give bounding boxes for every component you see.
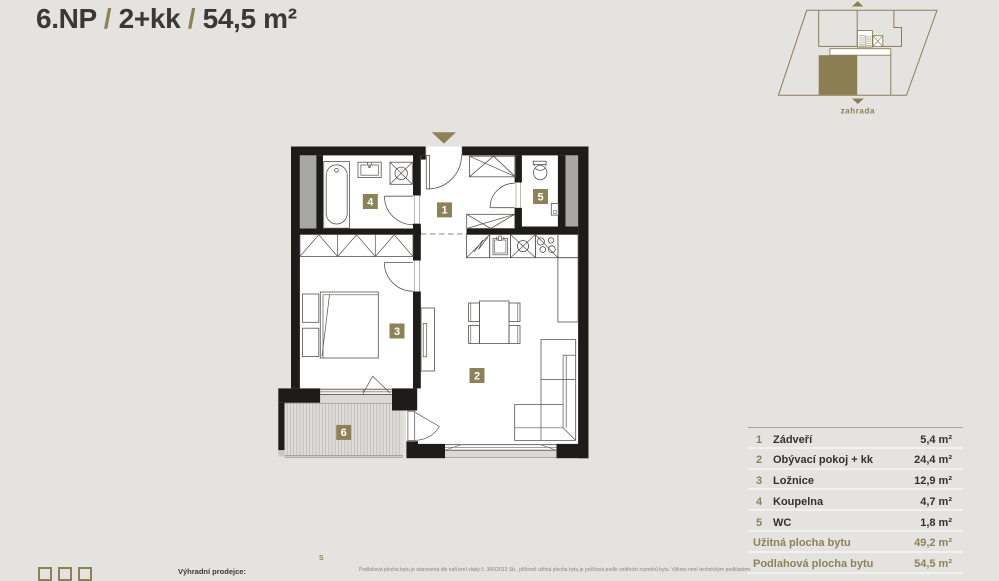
svg-text:5: 5 — [537, 191, 543, 203]
svg-text:4: 4 — [367, 196, 374, 208]
svg-text:zahrada: zahrada — [841, 107, 875, 116]
svg-text:6: 6 — [341, 427, 347, 439]
svg-text:3: 3 — [394, 326, 400, 338]
svg-text:2: 2 — [474, 370, 480, 382]
svg-text:1: 1 — [441, 205, 447, 217]
